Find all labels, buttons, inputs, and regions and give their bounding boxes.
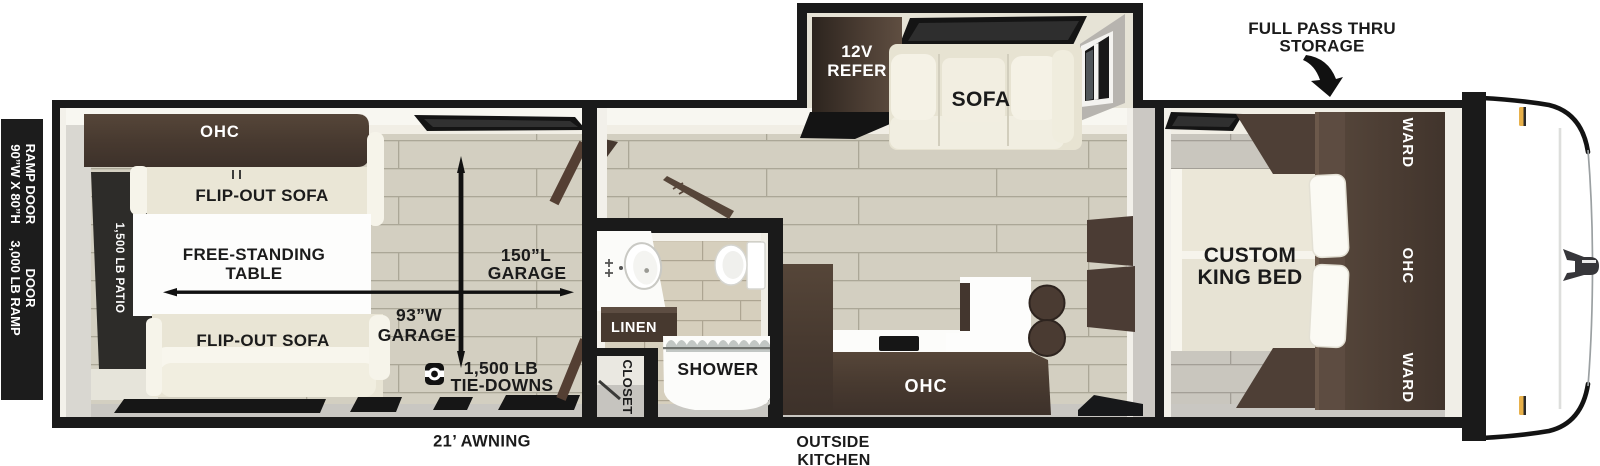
svg-text:3,000 LB RAMP: 3,000 LB RAMP xyxy=(8,240,23,336)
svg-text:OUTSIDE: OUTSIDE xyxy=(796,434,869,451)
svg-text:12V: 12V xyxy=(841,42,873,61)
svg-text:TIE-DOWNS: TIE-DOWNS xyxy=(451,375,554,395)
svg-text:SHOWER: SHOWER xyxy=(677,359,758,379)
svg-text:93”W: 93”W xyxy=(396,305,442,325)
svg-text:CUSTOM: CUSTOM xyxy=(1204,244,1296,267)
svg-text:OHC: OHC xyxy=(905,376,948,396)
svg-text:OHC: OHC xyxy=(200,123,240,141)
svg-text:GARAGE: GARAGE xyxy=(488,263,567,283)
svg-text:TABLE: TABLE xyxy=(226,264,283,283)
svg-text:STORAGE: STORAGE xyxy=(1279,37,1364,56)
svg-text:LINEN: LINEN xyxy=(611,320,657,336)
svg-text:CLOSET: CLOSET xyxy=(620,359,635,414)
svg-text:RAMP DOOR: RAMP DOOR xyxy=(23,144,38,225)
svg-text:90”W X 80”H: 90”W X 80”H xyxy=(8,144,23,223)
svg-text:150”L: 150”L xyxy=(501,245,551,265)
svg-text:WARD: WARD xyxy=(1399,118,1416,169)
svg-text:WARD: WARD xyxy=(1399,353,1416,404)
svg-text:FLIP-OUT SOFA: FLIP-OUT SOFA xyxy=(196,331,329,350)
svg-text:FLIP-OUT SOFA: FLIP-OUT SOFA xyxy=(195,186,328,205)
svg-text:KITCHEN: KITCHEN xyxy=(797,452,870,466)
svg-text:21’ AWNING: 21’ AWNING xyxy=(433,433,531,451)
svg-text:1,500 LB PATIO: 1,500 LB PATIO xyxy=(113,223,125,314)
svg-text:KING BED: KING BED xyxy=(1197,266,1302,289)
svg-text:OHC: OHC xyxy=(1399,248,1416,285)
svg-text:DOOR: DOOR xyxy=(23,269,38,309)
svg-text:REFER: REFER xyxy=(827,61,887,80)
svg-text:GARAGE: GARAGE xyxy=(378,325,457,345)
svg-text:FREE-STANDING: FREE-STANDING xyxy=(183,245,325,264)
svg-text:SOFA: SOFA xyxy=(952,88,1011,111)
svg-text:FULL PASS THRU: FULL PASS THRU xyxy=(1248,19,1396,38)
